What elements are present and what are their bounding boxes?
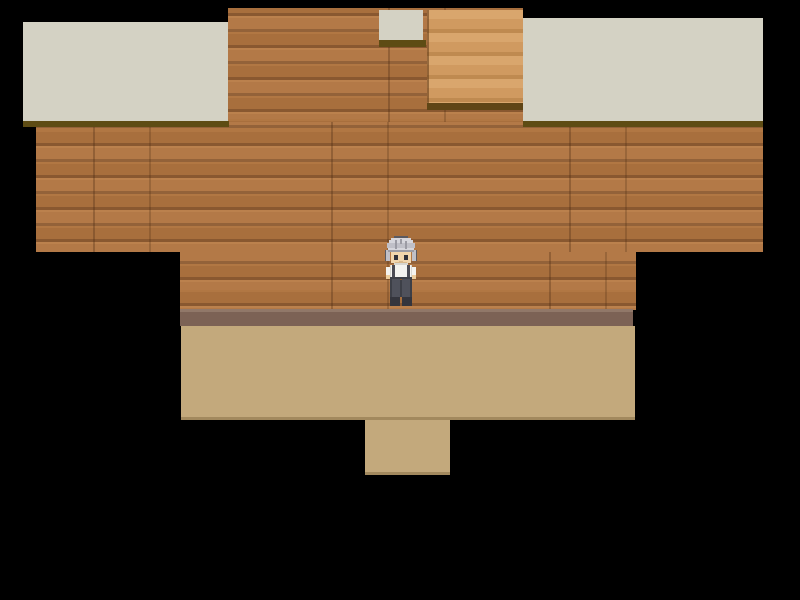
wood-wall-middle	[36, 122, 763, 252]
awning-small-top	[379, 10, 423, 40]
awning-right	[523, 18, 763, 121]
awning-small-top-shadow	[379, 40, 426, 47]
baseboard	[180, 309, 633, 326]
awning-left	[23, 22, 228, 121]
staircase-shadow	[427, 103, 523, 110]
player-character-sprite	[384, 236, 418, 307]
floor-entry	[365, 420, 450, 475]
awning-right-shadow	[523, 121, 763, 127]
player-character	[384, 236, 418, 307]
awning-left-shadow	[23, 121, 229, 127]
game-viewport[interactable]	[0, 0, 800, 600]
sprite-shoes	[390, 297, 412, 306]
floor-main	[181, 326, 635, 420]
staircase-top	[427, 10, 523, 103]
